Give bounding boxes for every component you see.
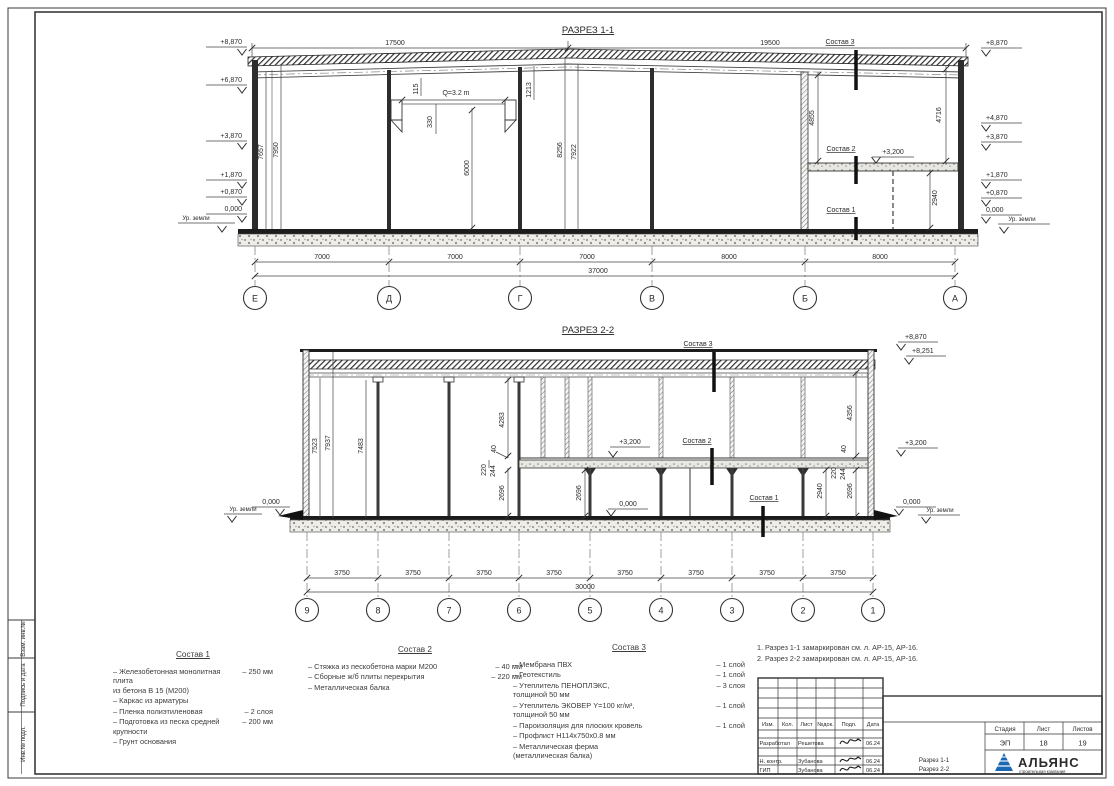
dim-7483: 7483 xyxy=(358,438,365,454)
elev-l-1870: +1,870 xyxy=(220,172,242,179)
tb-name-zubanova1: Зубанова xyxy=(798,759,824,765)
dim-1213: 1213 xyxy=(526,82,533,98)
logo-text: АЛЬЯНС xyxy=(1018,755,1080,770)
level-3200: +3,200 xyxy=(882,149,904,156)
axis-6: 6 xyxy=(516,606,521,616)
axis-7: 7 xyxy=(446,606,451,616)
tb-data: Дата xyxy=(867,722,880,728)
ground-label-s2-left: Ур. земли xyxy=(229,507,256,513)
span-54: 3750 xyxy=(617,570,633,577)
item-label: – Стяжка из пескобетона марки М200 xyxy=(308,662,437,672)
list-item: – Утеплитель ПЕНОПЛЭКС, толщиной 50 мм– … xyxy=(513,681,745,700)
dim-2940: 2940 xyxy=(932,190,939,206)
dim-2696-c: 2696 xyxy=(847,483,854,499)
level-8870-s2: +8,870 xyxy=(905,334,927,341)
item-label: – Пленка полиэтиленовая xyxy=(113,707,203,717)
tb-podp: Подп. xyxy=(842,722,857,728)
tb-role-nkontr: Н. контр. xyxy=(760,759,784,765)
span-98: 3750 xyxy=(334,570,350,577)
mark-s2-sostav3: Состав 3 xyxy=(683,341,712,348)
dim-7657: 7657 xyxy=(258,144,265,160)
sostav-2-list: Состав 2 – Стяжка из пескобетона марки М… xyxy=(308,645,522,693)
tb-sheets-value: 19 xyxy=(1078,739,1086,748)
tb-list: Лист xyxy=(800,722,813,728)
tb-izm: Изм. xyxy=(762,722,774,728)
tb-sheets-label: Листов xyxy=(1072,726,1093,733)
elev-r-0000: 0,000 xyxy=(986,207,1004,214)
item-value: – 1 слой xyxy=(711,660,745,670)
tb-name-reshetova: Решетова xyxy=(798,741,825,747)
axis-E: Е xyxy=(252,294,258,304)
axis-8: 8 xyxy=(375,606,380,616)
sostav-3-list: Состав 3 – Мембрана ПВХ– 1 слой – Геотек… xyxy=(513,643,745,762)
dim-17500: 17500 xyxy=(385,40,405,47)
section2-title: РАЗРЕЗ 2-2 xyxy=(562,325,614,336)
dim-220-right: 220 xyxy=(831,467,838,479)
section2-dim-texts: 7523 7937 7483 4283 40 220 244 2696 2696… xyxy=(312,405,854,501)
level-0-mid: 0,000 xyxy=(619,501,637,508)
dim-7950: 7950 xyxy=(273,142,280,158)
span-65: 3750 xyxy=(546,570,562,577)
elev-l-8870: +8,870 xyxy=(220,39,242,46)
elev-r-8870: +8,870 xyxy=(986,40,1008,47)
section2-roof xyxy=(300,349,877,377)
note-1: 1. Разрез 1-1 замаркирован см. л. АР-15,… xyxy=(757,642,997,653)
dim-2696-a: 2696 xyxy=(499,485,506,501)
elev-r-3870: +3,870 xyxy=(986,134,1008,141)
section1-elev-left: +8,870 +6,870 +3,870 +1,870 +0,870 0,000… xyxy=(178,39,247,232)
dim-4855: 4855 xyxy=(809,110,816,126)
sostav-2-title: Состав 2 xyxy=(308,645,522,655)
logo-subtext: строительная компания xyxy=(1019,769,1065,774)
list-item: – Утеплитель ЭКОВЕР Y=100 кг/м³, толщино… xyxy=(513,701,745,720)
sostav-1-title: Состав 1 xyxy=(113,650,273,660)
mark-sostav3: Состав 3 xyxy=(825,39,854,46)
level-3200-mid: +3,200 xyxy=(619,439,641,446)
axis-3: 3 xyxy=(729,606,734,616)
tb-role-razrabotal: Разработал xyxy=(760,741,790,747)
tb-date-3: 06.24 xyxy=(866,768,880,774)
item-label: – Подготовка из песка средней крупности xyxy=(113,717,219,736)
item-label: – Утеплитель ЭКОВЕР Y=100 кг/м³, толщино… xyxy=(513,701,634,720)
axis-A: А xyxy=(952,294,958,304)
tb-role-gip: ГИП xyxy=(760,768,771,774)
tb-kol: Кол. xyxy=(782,722,794,728)
level-8251-s2: +8,251 xyxy=(912,348,934,355)
elev-l-0000: 0,000 xyxy=(224,206,242,213)
ground-label-left: Ур. земли xyxy=(182,216,209,222)
item-value: – 200 мм xyxy=(237,717,273,727)
list-item: – Геотекстиль– 1 слой xyxy=(513,670,745,680)
dim-8256: 8256 xyxy=(557,142,564,158)
span-dg: 7000 xyxy=(447,254,463,261)
section1-elev-right: +8,870 +4,870 +3,870 +1,870 +0,870 0,000… xyxy=(981,40,1050,233)
dim-115: 115 xyxy=(413,83,420,94)
level-3200-right: +3,200 xyxy=(905,440,927,447)
mark-s2-sostav2: Состав 2 xyxy=(682,438,711,445)
dim-19500: 19500 xyxy=(760,40,780,47)
tb-stage-label: Стадия xyxy=(994,726,1015,733)
signature-zubanova-2 xyxy=(840,766,861,771)
elev-r-0870: +0,870 xyxy=(986,190,1008,197)
section1-axes: 7000 7000 7000 8000 8000 37000 Е Д Г В Б… xyxy=(244,246,967,310)
mark-s2-sostav1: Состав 1 xyxy=(749,495,778,502)
span-32: 3750 xyxy=(759,570,775,577)
span-gv: 7000 xyxy=(579,254,595,261)
note-2: 2. Разрез 2-2 замаркирован см. л. АР-15,… xyxy=(757,653,997,664)
section1-roof xyxy=(248,49,968,78)
item-label: – Каркас из арматуры xyxy=(113,696,188,706)
frame-label-inv: Инв.№ подл. xyxy=(20,726,27,762)
section1-title: РАЗРЕЗ 1-1 xyxy=(562,25,614,36)
tb-sheet-label: Лист xyxy=(1037,726,1051,733)
span-vb: 8000 xyxy=(721,254,737,261)
item-value: – 3 слоя xyxy=(711,681,745,691)
tb-date-1: 06.24 xyxy=(866,741,880,747)
axis-9: 9 xyxy=(304,606,309,616)
list-item: – Грунт основания xyxy=(113,737,273,747)
section2-structure xyxy=(303,350,874,520)
item-value: – 1 слой xyxy=(711,701,745,711)
axis-2: 2 xyxy=(800,606,805,616)
list-item: – Металлическая балка xyxy=(308,683,522,693)
elev-l-3870: +3,870 xyxy=(220,133,242,140)
axis-V: В xyxy=(649,294,655,304)
item-value: – 1 слой xyxy=(711,721,745,731)
dim-244-left: 244 xyxy=(490,465,497,477)
list-item: – Подготовка из песка средней крупности–… xyxy=(113,717,273,736)
level-0-left: 0,000 xyxy=(262,499,280,506)
total-30000: 30000 xyxy=(575,584,595,591)
ground-label-right: Ур. земли xyxy=(1008,217,1035,223)
axis-D: Д xyxy=(386,294,392,304)
level-0-right: 0,000 xyxy=(903,499,921,506)
item-value: – 1 слой xyxy=(711,670,745,680)
list-item: – Стяжка из пескобетона марки М200– 40 м… xyxy=(308,662,522,672)
list-item: – Пароизоляция для плоских кровель– 1 сл… xyxy=(513,721,745,731)
company-logo: АЛЬЯНС строительная компания xyxy=(995,753,1080,774)
tb-stage-value: ЭП xyxy=(1000,739,1011,748)
section-1-drawing: РАЗРЕЗ 1-1 xyxy=(178,25,1050,310)
item-label: – Сборные ж/б плиты перекрытия xyxy=(308,672,425,682)
list-item: – Профлист Н114х750х0.8 мм xyxy=(513,731,745,741)
dim-220-left: 220 xyxy=(481,464,488,476)
item-label: – Профлист Н114х750х0.8 мм xyxy=(513,731,616,741)
logo-pyramid-icon xyxy=(995,753,1013,771)
axis-B: Б xyxy=(802,294,808,304)
tb-sheet-value: 18 xyxy=(1039,739,1047,748)
frame-label-vzam: Взам. инв.№ xyxy=(20,621,27,657)
section1-ground xyxy=(238,229,978,246)
span-43: 3750 xyxy=(688,570,704,577)
tb-ndok: №док. xyxy=(817,722,834,728)
mark-sostav2: Состав 2 xyxy=(826,146,855,153)
elev-l-6870: +6,870 xyxy=(220,77,242,84)
drawing-sheet: Взам. инв.№ Подпись и дата Инв.№ подл. Р… xyxy=(0,0,1114,786)
span-21: 3750 xyxy=(830,570,846,577)
section2-axes: 3750 3750 3750 3750 3750 3750 3750 3750 … xyxy=(296,532,885,622)
tb-doc-title-2: Разрез 2-2 xyxy=(919,766,950,773)
frame-side-labels: Взам. инв.№ Подпись и дата Инв.№ подл. xyxy=(20,621,27,762)
list-item: – Мембрана ПВХ– 1 слой xyxy=(513,660,745,670)
elev-l-0870: +0,870 xyxy=(220,189,242,196)
span-76: 3750 xyxy=(476,570,492,577)
list-item: – Сборные ж/б плиты перекрытия– 220 мм xyxy=(308,672,522,682)
dim-40-left: 40 xyxy=(491,445,498,453)
span-ed: 7000 xyxy=(314,254,330,261)
item-label: – Металлическая ферма (металлическая бал… xyxy=(513,742,598,761)
tb-doc-title-1: Разрез 1-1 xyxy=(919,757,950,764)
dim-330: 330 xyxy=(427,116,434,128)
ground-label-s2-right: Ур. земли xyxy=(926,508,953,514)
crane-capacity: Q=3.2 m xyxy=(442,90,469,97)
axis-4: 4 xyxy=(658,606,663,616)
dim-4716: 4716 xyxy=(936,107,943,123)
span-87: 3750 xyxy=(405,570,421,577)
dim-4283: 4283 xyxy=(499,412,506,428)
tb-name-zubanova2: Зубанова xyxy=(798,768,824,774)
item-label: – Железобетонная монолитная плита из бет… xyxy=(113,667,237,696)
dim-7523: 7523 xyxy=(312,438,319,454)
list-item: – Железобетонная монолитная плита из бет… xyxy=(113,667,273,696)
list-item: – Пленка полиэтиленовая– 2 слоя xyxy=(113,707,273,717)
item-label: – Геотекстиль xyxy=(513,670,561,680)
dim-2696-b: 2696 xyxy=(576,485,583,501)
dim-4356: 4356 xyxy=(847,405,854,421)
item-label: – Мембрана ПВХ xyxy=(513,660,572,670)
item-label: – Металлическая балка xyxy=(308,683,390,693)
dim-6000: 6000 xyxy=(464,160,471,176)
item-value: – 250 мм xyxy=(237,667,273,677)
item-label: – Пароизоляция для плоских кровель xyxy=(513,721,642,731)
signatures xyxy=(840,739,861,771)
frame-label-podpis: Подпись и дата xyxy=(21,663,27,707)
dim-244-right: 244 xyxy=(840,468,847,480)
item-label: – Грунт основания xyxy=(113,737,176,747)
axis-5: 5 xyxy=(587,606,592,616)
item-label: – Утеплитель ПЕНОПЛЭКС, толщиной 50 мм xyxy=(513,681,610,700)
span-ba: 8000 xyxy=(872,254,888,261)
item-value: – 2 слоя xyxy=(239,707,273,717)
total-37000: 37000 xyxy=(588,268,608,275)
elev-r-1870: +1,870 xyxy=(986,172,1008,179)
elev-r-4870: +4,870 xyxy=(986,115,1008,122)
dim-40-right: 40 xyxy=(841,445,848,453)
signature-reshetova xyxy=(840,739,861,744)
list-item: – Каркас из арматуры xyxy=(113,696,273,706)
dim-7922: 7922 xyxy=(571,144,578,160)
axis-G: Г xyxy=(518,294,523,304)
sostav-3-title: Состав 3 xyxy=(513,643,745,653)
drawing-notes: 1. Разрез 1-1 замаркирован см. л. АР-15,… xyxy=(757,642,997,664)
section-2-drawing: РАЗРЕЗ 2-2 xyxy=(224,325,960,622)
list-item: – Металлическая ферма (металлическая бал… xyxy=(513,742,745,761)
signature-zubanova-1 xyxy=(840,757,861,762)
title-block: Изм. Кол. Лист №док. Подп. Дата Разработ… xyxy=(758,678,1102,774)
mark-sostav1: Состав 1 xyxy=(826,207,855,214)
dim-2940-s2: 2940 xyxy=(817,483,824,499)
sostav-1-list: Состав 1 – Железобетонная монолитная пли… xyxy=(113,650,273,748)
dim-7937: 7937 xyxy=(325,435,332,451)
axis-1: 1 xyxy=(870,606,875,616)
tb-date-2: 06.24 xyxy=(866,759,880,765)
